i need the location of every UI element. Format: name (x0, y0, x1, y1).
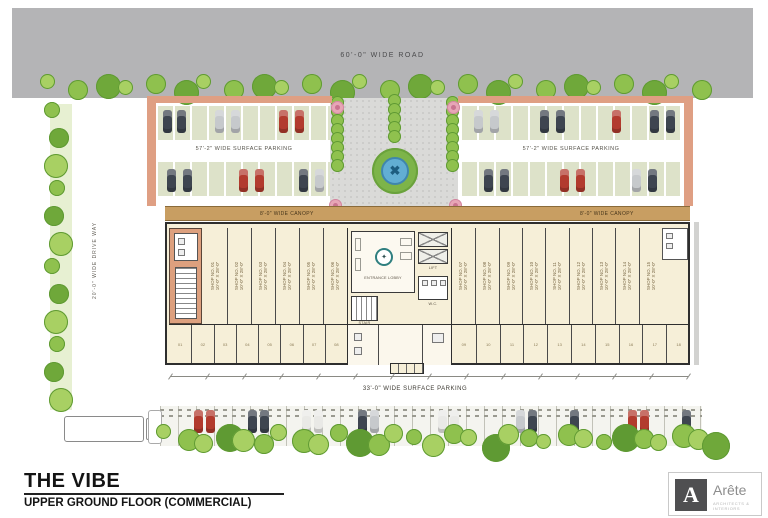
shop-label: SHOP NO. 0210'-0" X 28'-0" (235, 262, 245, 290)
bush-icon (156, 424, 171, 439)
title-underline (24, 493, 284, 495)
logo-brand: Arête (713, 482, 746, 498)
shop-label: SHOP NO. 0610'-0" X 28'-0" (331, 262, 341, 290)
car-icon (560, 169, 569, 192)
tree-icon (49, 284, 69, 304)
bush-icon (520, 429, 538, 447)
stall-unit: 08 (325, 325, 347, 363)
shop-label: SHOP NO. 1310'-0" X 28'-0" (599, 262, 609, 290)
car-icon (576, 169, 585, 192)
shop-label: SHOP NO. 0510'-0" X 28'-0" (307, 262, 317, 290)
stall-unit: 13 (547, 325, 571, 363)
tree-icon (586, 80, 601, 95)
tree-icon (352, 74, 367, 89)
shop-unit: SHOP NO. 1110'-0" X 28'-0" (545, 228, 568, 324)
car-icon (231, 110, 240, 133)
tree-icon (40, 74, 55, 89)
logo-tagline: ARCHITECTS & INTERIORS (713, 501, 761, 511)
car-icon (177, 110, 186, 133)
shop-label: SHOP NO. 1210'-0" X 28'-0" (576, 262, 586, 290)
plaza-hedge-center (388, 98, 401, 143)
lobby-label: ENTRANCE LOBBY (352, 276, 414, 280)
stall-unit: 16 (619, 325, 643, 363)
car-icon (556, 110, 565, 133)
shop-unit: SHOP NO. 1010'-0" X 28'-0" (522, 228, 545, 324)
shop-unit: SHOP NO. 0710'-0" X 28'-0" (452, 228, 475, 324)
canopy-right-label: 8'-0" WIDE CANOPY (580, 211, 634, 217)
tree-icon (664, 74, 679, 89)
bush-icon (406, 429, 422, 445)
hedge-icon (331, 159, 344, 172)
project-title: THE VIBE (24, 470, 120, 493)
core-block: ✦ ENTRANCE LOBBY STAIR LIFT W.C. (347, 228, 452, 324)
bush-icon (650, 434, 667, 451)
shop-unit: SHOP NO. 1310'-0" X 28'-0" (592, 228, 615, 324)
logo-mark-icon: A (675, 479, 707, 511)
stall-unit: 06 (280, 325, 302, 363)
shop-unit: SHOP NO. 1210'-0" X 28'-0" (569, 228, 592, 324)
stall-row-left: 0102030405060708 (169, 324, 347, 363)
shop-row-left: SHOP NO. 0110'-0" X 28'-0"SHOP NO. 0210'… (203, 228, 347, 324)
stall-unit: 03 (214, 325, 236, 363)
stall-unit: 05 (258, 325, 280, 363)
stall-unit: 18 (666, 325, 690, 363)
car-icon (215, 110, 224, 133)
parking-left-label: 57'-2" WIDE SURFACE PARKING (158, 146, 330, 152)
tree-icon (692, 80, 712, 100)
tree-icon (44, 154, 68, 178)
car-icon (167, 169, 176, 192)
core-lower-rooms (347, 324, 452, 365)
stall-unit: 02 (191, 325, 213, 363)
site-plan-drawing: 60'-0" WIDE ROAD 20'-0" WIDE DRIVE WAY ✖… (0, 0, 768, 518)
lift-icon (418, 232, 448, 247)
bottom-bush-row (156, 424, 731, 466)
car-icon (295, 110, 304, 133)
stall-unit: 15 (595, 325, 619, 363)
toilet-room (418, 276, 448, 300)
car-icon (666, 110, 675, 133)
corner-room (662, 228, 688, 260)
car-icon (648, 169, 657, 192)
shop-label: SHOP NO. 0110'-0" X 28'-0" (210, 262, 220, 290)
stall-unit: 01 (169, 325, 191, 363)
bush-icon (308, 434, 329, 455)
stall-unit: 12 (523, 325, 547, 363)
stair-icon (175, 267, 197, 319)
bottom-parking-label: 33'-0" WIDE SURFACE PARKING (300, 386, 530, 392)
stair-annex (169, 228, 202, 324)
car-icon (279, 110, 288, 133)
tree-icon (118, 80, 133, 95)
hedge-icon (446, 159, 459, 172)
car-icon (474, 110, 483, 133)
shop-label: SHOP NO. 0910'-0" X 28'-0" (506, 262, 516, 290)
shop-unit: SHOP NO. 0910'-0" X 28'-0" (499, 228, 522, 324)
tree-icon (44, 258, 60, 274)
tree-icon (49, 180, 65, 196)
compound-wall (147, 96, 156, 206)
car-icon (315, 169, 324, 192)
tree-icon (430, 80, 445, 95)
tree-icon (44, 102, 60, 118)
tree-icon (68, 80, 88, 100)
car-icon (540, 110, 549, 133)
compass-icon: ✦ (375, 248, 393, 266)
car-icon (484, 169, 493, 192)
shop-unit: SHOP NO. 0110'-0" X 28'-0" (203, 228, 227, 324)
shop-unit: SHOP NO. 1410'-0" X 28'-0" (615, 228, 638, 324)
stall-unit: 14 (571, 325, 595, 363)
car-icon (490, 110, 499, 133)
tree-icon (44, 206, 64, 226)
car-icon (650, 110, 659, 133)
bush-icon (460, 429, 477, 446)
architect-logo: A Arête ARCHITECTS & INTERIORS (668, 472, 762, 516)
shop-unit: SHOP NO. 0310'-0" X 28'-0" (251, 228, 275, 324)
stall-unit: 04 (236, 325, 258, 363)
parking-row (158, 162, 330, 196)
tree-icon (508, 74, 523, 89)
tree-icon (458, 74, 478, 94)
shop-label: SHOP NO. 1410'-0" X 28'-0" (623, 262, 633, 290)
dimension-tick (686, 373, 691, 379)
compound-wall (150, 96, 332, 103)
shop-unit: SHOP NO. 0810'-0" X 28'-0" (475, 228, 498, 324)
tree-icon (702, 432, 730, 460)
tree-icon (44, 362, 64, 382)
bush-icon (232, 429, 255, 452)
shop-unit: SHOP NO. 0210'-0" X 28'-0" (227, 228, 251, 324)
wc-label: W.C. (418, 302, 448, 306)
parking-row (158, 106, 330, 140)
lift-label: LIFT (418, 266, 448, 270)
left-road-label: 20'-0" WIDE DRIVE WAY (92, 185, 106, 335)
flower-icon (331, 101, 344, 114)
shop-label: SHOP NO. 1110'-0" X 28'-0" (553, 262, 563, 290)
left-tree-column (44, 102, 84, 417)
bush-icon (536, 434, 551, 449)
main-building: SHOP NO. 0110'-0" X 28'-0"SHOP NO. 0210'… (165, 222, 690, 365)
parking-right-label: 57'-2" WIDE SURFACE PARKING (462, 146, 680, 152)
canopy-band: 8'-0" WIDE CANOPY 8'-0" WIDE CANOPY (165, 206, 690, 221)
car-icon (632, 169, 641, 192)
compound-wall (684, 96, 693, 206)
stall-unit: 17 (642, 325, 666, 363)
compound-wall (458, 96, 692, 103)
tree-icon (49, 232, 73, 256)
bush-icon (270, 424, 287, 441)
shop-label: SHOP NO. 0710'-0" X 28'-0" (459, 262, 469, 290)
stair-icon (351, 296, 378, 321)
car-icon (183, 169, 192, 192)
stall-unit: 09 (452, 325, 476, 363)
car-icon (612, 110, 621, 133)
truck-icon (64, 416, 144, 442)
car-icon (163, 110, 172, 133)
bush-icon (384, 424, 403, 443)
tree-icon (614, 74, 634, 94)
stall-unit: 07 (303, 325, 325, 363)
car-icon (239, 169, 248, 192)
shop-unit: SHOP NO. 0510'-0" X 28'-0" (299, 228, 323, 324)
bush-icon (498, 424, 519, 445)
tree-icon (44, 310, 68, 334)
tree-icon (49, 336, 65, 352)
tree-icon (302, 74, 322, 94)
tree-icon (196, 74, 211, 89)
shop-row-right: SHOP NO. 0710'-0" X 28'-0"SHOP NO. 0810'… (452, 228, 662, 324)
parking-row (462, 162, 680, 196)
bush-icon (422, 434, 445, 457)
bush-icon (596, 434, 612, 450)
toilet-room (174, 233, 198, 261)
stall-unit: 10 (476, 325, 500, 363)
shop-label: SHOP NO. 1510'-0" X 28'-0" (646, 262, 656, 290)
bush-icon (574, 429, 593, 448)
tree-icon (274, 80, 289, 95)
tree-icon (146, 74, 166, 94)
shop-unit: SHOP NO. 0610'-0" X 28'-0" (323, 228, 347, 324)
car-icon (500, 169, 509, 192)
shop-unit: SHOP NO. 1510'-0" X 28'-0" (639, 228, 662, 324)
compound-wall (694, 222, 699, 365)
car-icon (255, 169, 264, 192)
hedge-icon (388, 130, 401, 143)
shop-label: SHOP NO. 0810'-0" X 28'-0" (483, 262, 493, 290)
tree-icon (49, 128, 69, 148)
shop-unit: SHOP NO. 0410'-0" X 28'-0" (275, 228, 299, 324)
stall-row-right: 09101112131415161718 (452, 324, 690, 363)
bush-icon (194, 434, 213, 453)
fountain-icon: ✖ (381, 157, 409, 185)
parking-row (462, 106, 680, 140)
tree-icon (49, 388, 73, 412)
canopy-left-label: 8'-0" WIDE CANOPY (260, 211, 314, 217)
stall-unit: 11 (500, 325, 524, 363)
entrance-lobby: ✦ ENTRANCE LOBBY (351, 231, 415, 293)
shop-label: SHOP NO. 1010'-0" X 28'-0" (529, 262, 539, 290)
entrance-steps (390, 363, 424, 374)
lift-icon (418, 249, 448, 264)
shop-label: SHOP NO. 0410'-0" X 28'-0" (283, 262, 293, 290)
top-road-label: 60'-0" WIDE ROAD (12, 52, 753, 59)
floor-subtitle: UPPER GROUND FLOOR (COMMERCIAL) (24, 497, 251, 509)
shop-label: SHOP NO. 0310'-0" X 28'-0" (259, 262, 269, 290)
car-icon (299, 169, 308, 192)
